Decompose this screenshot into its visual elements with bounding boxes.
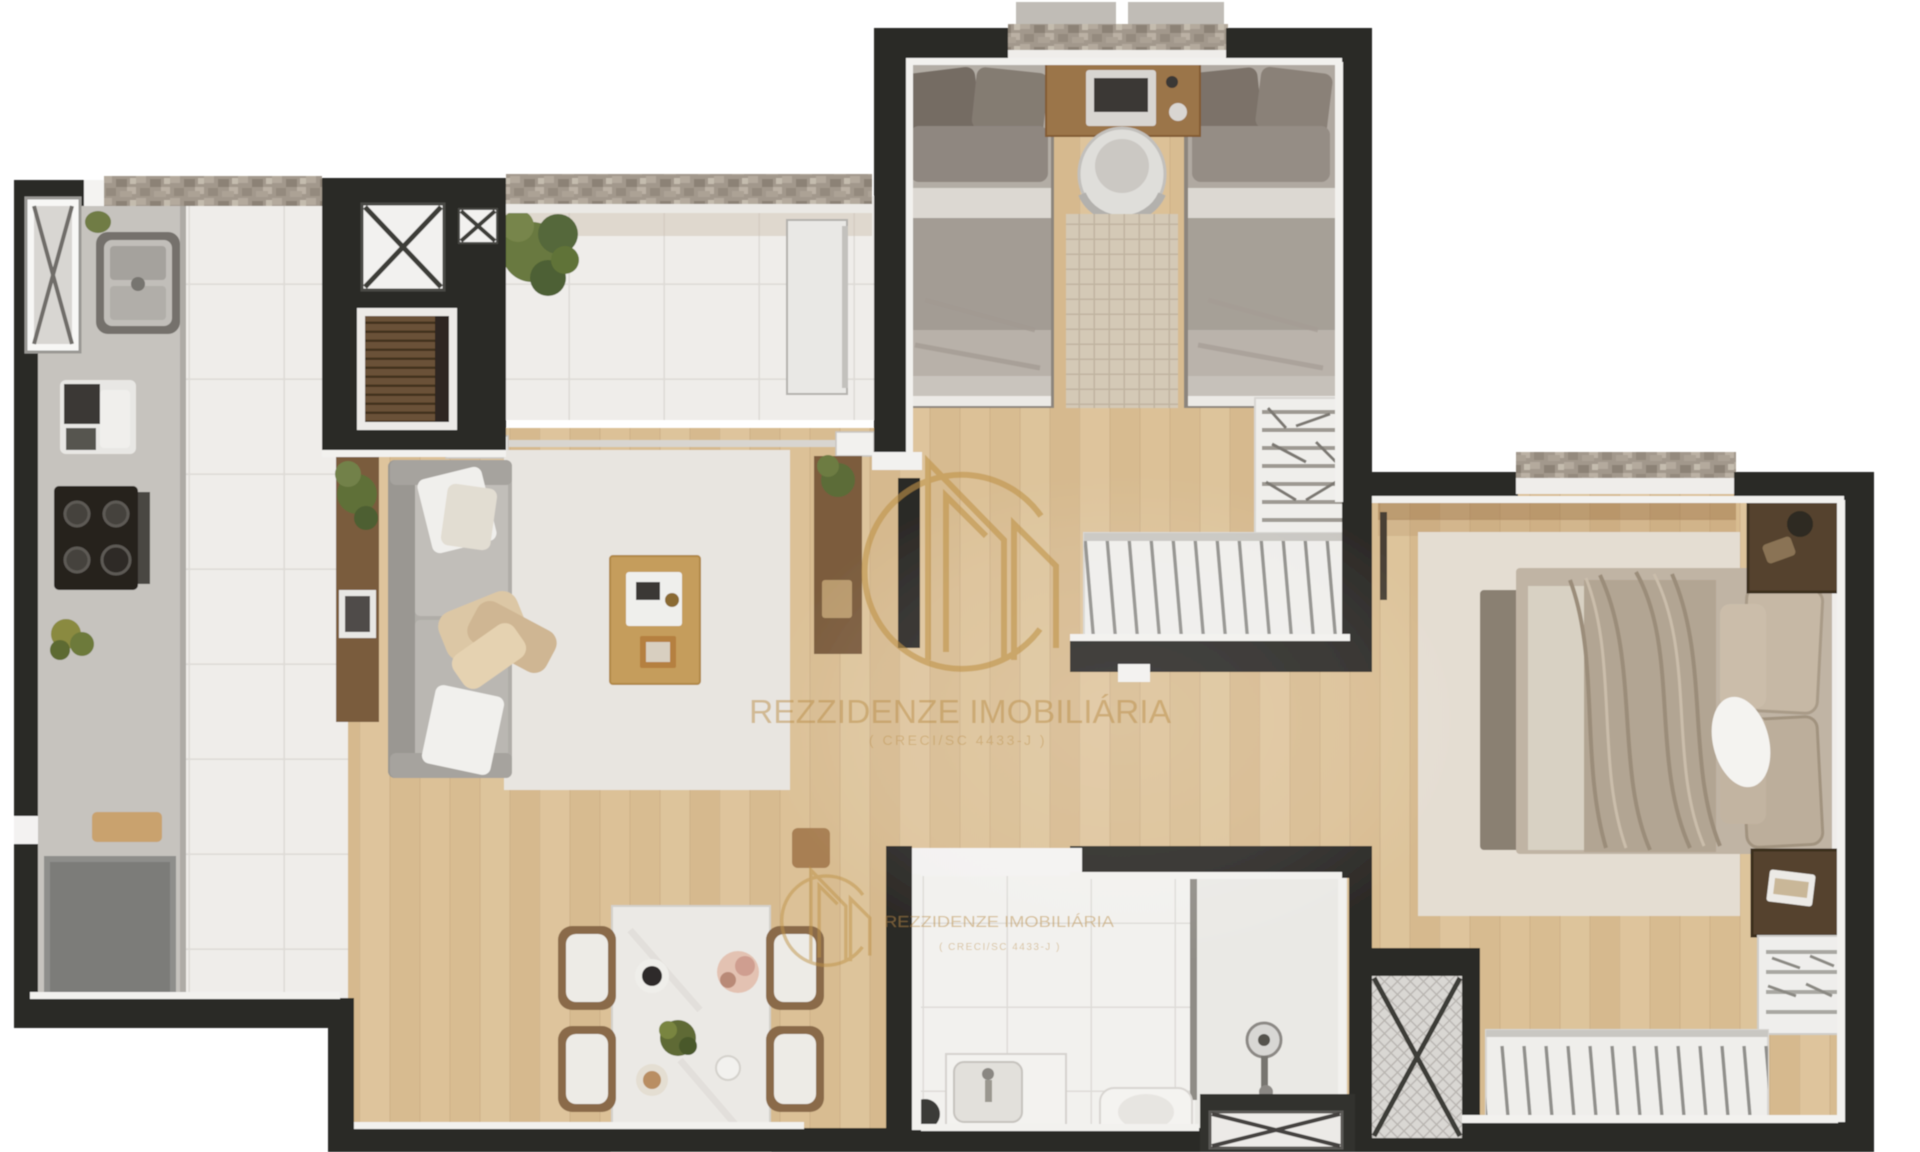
svg-text:( CRECI/SC 4433-J ): ( CRECI/SC 4433-J ) xyxy=(939,942,1061,953)
svg-text:REZZIDENZE IMOBILIÁRIA: REZZIDENZE IMOBILIÁRIA xyxy=(749,693,1171,730)
svg-text:( CRECI/SC 4433-J ): ( CRECI/SC 4433-J ) xyxy=(869,732,1047,748)
svg-text:REZZIDENZE IMOBILIÁRIA: REZZIDENZE IMOBILIÁRIA xyxy=(884,912,1114,931)
